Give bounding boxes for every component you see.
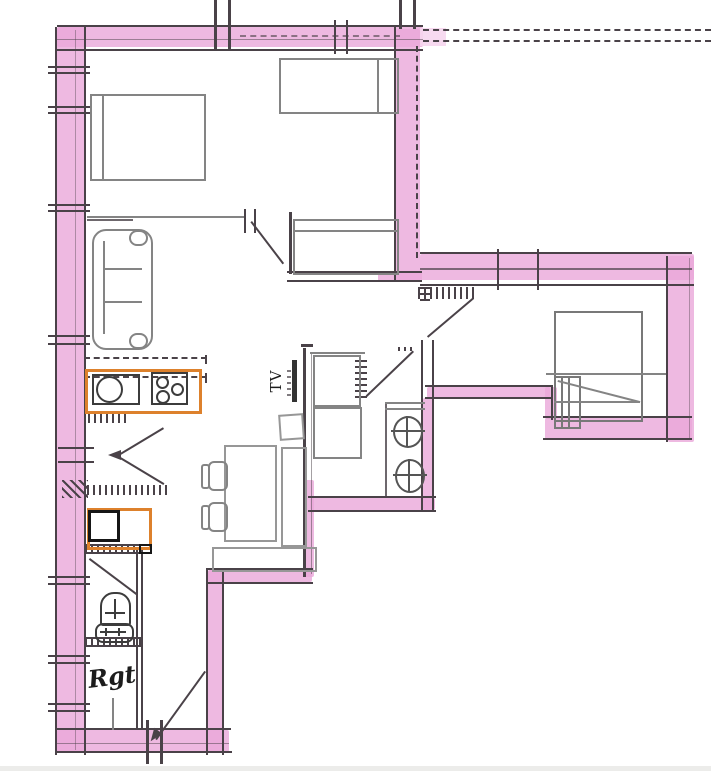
cistern-tick	[118, 628, 120, 636]
wall-tick	[48, 662, 90, 664]
wall-bath-right-line-b	[432, 340, 434, 512]
kitchen-overhead-dashed	[84, 357, 207, 359]
window-swing-left-lower	[118, 456, 164, 485]
dining-chair	[208, 461, 228, 491]
cistern	[95, 623, 134, 643]
door-swing-wc	[89, 558, 138, 596]
washbasin	[393, 416, 423, 448]
wall-hall-bath-bottom-line	[425, 397, 552, 399]
tv-screen	[292, 360, 297, 402]
wall-bottom-outer-line	[55, 751, 232, 753]
wall-stub-top-d	[413, 0, 416, 29]
bed-edge-line	[295, 230, 397, 232]
wall-bottom-inner-line	[55, 728, 231, 730]
kitchen-dashed-tick-a	[205, 355, 207, 364]
wall-left-outer-line	[55, 27, 57, 755]
cistern-line	[100, 631, 126, 633]
wall-tick	[48, 710, 90, 712]
wall-tick	[537, 249, 539, 290]
wall-bottom-mid-line	[57, 743, 229, 744]
wall-stub-top-a	[214, 0, 217, 50]
wall-left-mid-line	[75, 30, 76, 750]
wall-entry-right-line-b	[222, 568, 224, 755]
wall-bath-bottom-line-a	[308, 496, 436, 498]
kitchen-sink-bowl	[96, 376, 123, 403]
wall-bedroom1-divider-line	[87, 216, 244, 218]
bath-counter-line-b	[385, 408, 425, 410]
wall-bath-left-line	[385, 403, 387, 496]
wall-tv-cap	[301, 344, 313, 347]
sofa-back-line	[103, 241, 105, 334]
door-swing-bathroom	[366, 351, 414, 397]
entry-bench	[212, 547, 317, 572]
wall-tick	[48, 335, 90, 337]
door-jamb-hall	[420, 283, 430, 301]
window-jamb-left-a	[58, 447, 94, 449]
wall-top-highlight	[57, 27, 423, 47]
toilet-cross-h	[393, 474, 427, 476]
wall-top-mid-line	[57, 39, 423, 40]
sofa-armrest	[129, 230, 148, 246]
door-swing-hall	[427, 297, 474, 337]
wall-tick	[48, 655, 90, 657]
wall-tick	[48, 576, 90, 578]
wall-bath-bottom-line-b	[308, 510, 436, 512]
toilet-bath	[395, 459, 425, 493]
wall-tick	[48, 106, 90, 108]
toilet-cross-v	[114, 599, 116, 619]
wall-right-inner-line	[666, 256, 668, 442]
wall-tick	[48, 72, 90, 74]
mezzanine-line	[546, 373, 666, 375]
sofa	[92, 229, 153, 350]
double-bed	[90, 94, 206, 181]
storage-door-line	[112, 698, 114, 730]
window-swing-left-upper	[118, 427, 164, 456]
hob-burner	[156, 390, 170, 404]
kitchen-unit-highlight	[85, 369, 202, 414]
wardrobe-top-line	[310, 352, 365, 354]
scan-streak	[0, 766, 711, 771]
window-arrow-head	[108, 450, 121, 460]
side-table	[278, 413, 305, 441]
wall-top-outer-line	[57, 25, 423, 27]
fridge	[88, 510, 120, 542]
wall-left-highlight	[57, 27, 85, 753]
wall-bedroom2-south-line-b	[287, 280, 422, 282]
single-bed-bottom	[293, 219, 399, 275]
wall-corridor-outer-line	[420, 252, 692, 254]
wall-bedroom3-bottom-outer-line	[543, 438, 692, 440]
bed-pillow-line	[102, 96, 104, 179]
wall-hall-bath-top-line	[425, 385, 552, 387]
wall-bath-bottom-highlight	[310, 498, 435, 510]
sideboard	[281, 447, 307, 547]
wall-tv-inner-line	[311, 352, 312, 574]
hob-burner	[171, 383, 184, 396]
bath-counter-line-a	[385, 402, 425, 404]
wall-bedroom2-headboard-line	[289, 212, 292, 274]
toilet-cross-v	[408, 459, 410, 491]
bed-pillow-line	[377, 60, 379, 112]
wall-stub-top-b	[228, 0, 231, 50]
toilet-wc	[100, 592, 131, 626]
washbasin-cross-h	[391, 430, 425, 432]
wall-tick	[497, 249, 499, 290]
floor-plan: TV Rgt	[0, 0, 711, 782]
wall-top-dashed-line	[240, 35, 400, 37]
wall-tick	[346, 20, 348, 54]
sofa-cushion-line	[104, 268, 142, 270]
wall-right-outer-line	[689, 258, 690, 440]
dining-table	[224, 445, 277, 542]
window-hatch-left	[62, 480, 88, 498]
window-leaf-left-upper	[88, 413, 130, 423]
wall-tick	[48, 66, 90, 68]
wall-tick	[334, 20, 336, 54]
wall-bedroom3-left-line	[551, 385, 553, 420]
boundary-dashed-top-b	[423, 40, 711, 42]
wall-tick	[48, 204, 90, 206]
wall-bedroom1-divider-accent	[87, 219, 133, 221]
bed-rail-line	[554, 401, 640, 403]
wall-tick	[48, 112, 90, 114]
entrance-jamb-left	[146, 720, 149, 764]
wall-stub-top-c	[399, 0, 402, 29]
wall-bottom-highlight	[57, 730, 229, 752]
cistern-tick	[105, 628, 107, 636]
wall-wc-bottom-line-b	[85, 645, 143, 647]
wall-corridor-mid-line	[420, 268, 692, 270]
single-bed-top	[279, 58, 399, 114]
wardrobe-lower	[313, 407, 362, 459]
washbasin-cross-v	[406, 416, 408, 446]
wall-entry-right-highlight	[208, 570, 223, 753]
wardrobe-upper	[313, 355, 361, 407]
sofa-armrest	[129, 333, 148, 349]
wall-bedroom2-right-dashed	[416, 46, 418, 258]
window-leaf-left-lower	[87, 485, 167, 495]
kitchen-dashed-tick-b	[205, 373, 207, 383]
wall-corridor-top-highlight	[420, 254, 694, 280]
socket-box	[139, 544, 152, 554]
storage-label: Rgt	[86, 659, 137, 694]
wall-tick	[48, 343, 90, 345]
door-swing-bedroom1	[250, 221, 284, 264]
hob-burner	[156, 376, 169, 389]
wall-entry-right-line-a	[206, 568, 208, 755]
window-jamb-left-b	[58, 461, 94, 463]
tv-mount-hatch	[287, 366, 291, 396]
tv-label: TV	[267, 359, 285, 403]
toilet-cross-h	[105, 612, 125, 614]
sofa-cushion-line	[104, 301, 142, 303]
boundary-dashed-top-a	[423, 29, 711, 31]
wall-tick	[48, 703, 90, 705]
wall-top-inner-line	[57, 49, 423, 51]
wall-corridor-inner-line	[420, 284, 694, 286]
wall-tick	[48, 210, 90, 212]
dining-chair	[208, 502, 228, 532]
wall-tick	[48, 583, 90, 585]
wall-tick	[244, 209, 246, 233]
